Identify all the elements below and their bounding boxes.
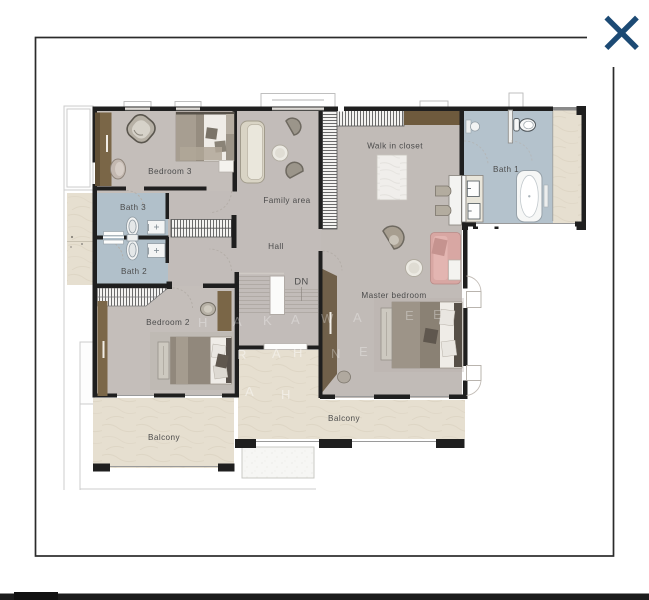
svg-text:E: E [359,344,368,359]
svg-text:H: H [281,387,290,402]
svg-text:Walk in closet: Walk in closet [367,142,423,151]
svg-text:H: H [293,345,302,360]
svg-text:A: A [291,312,300,327]
svg-text:H: H [198,315,207,330]
svg-text:Hall: Hall [268,242,284,251]
svg-text:A: A [233,314,242,329]
svg-text:K: K [263,313,272,328]
svg-text:A: A [272,346,281,361]
svg-text:W: W [321,311,334,326]
svg-text:E: E [433,307,442,322]
svg-text:DN: DN [294,277,308,287]
svg-text:E: E [405,308,414,323]
svg-text:Bath 2: Bath 2 [121,267,147,276]
svg-text:Bath 1: Bath 1 [493,165,519,174]
svg-text:A: A [245,384,254,399]
svg-text:Family area: Family area [263,196,310,205]
svg-text:N: N [331,346,340,361]
svg-text:A: A [353,310,362,325]
svg-text:R: R [237,347,246,362]
svg-text:Bedroom 2: Bedroom 2 [146,318,190,327]
svg-text:Balcony: Balcony [148,433,180,442]
svg-text:Balcony: Balcony [328,414,360,423]
svg-text:Bedroom 3: Bedroom 3 [148,167,192,176]
svg-text:Master bedroom: Master bedroom [361,291,426,300]
svg-text:Bath 3: Bath 3 [120,203,146,212]
